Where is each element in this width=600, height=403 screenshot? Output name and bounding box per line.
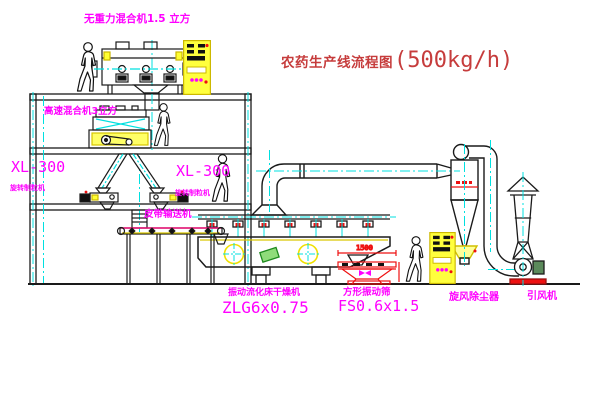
vibration-mounts [207, 219, 373, 237]
label-cyclone: 旋风除尘器 [449, 293, 499, 303]
label-screen-model: FS0.6x1.5 [338, 299, 419, 314]
worker-figure-top [78, 43, 96, 91]
dryer-name-plate [260, 247, 279, 262]
label-belt-conveyor: 皮带输送机 [144, 210, 192, 220]
diagram-title: 农药生产线流程图(500kg/h) [281, 48, 513, 73]
title-text: 农药生产线流程图 [281, 51, 393, 71]
label-granulator-left-model: XL-300 [11, 160, 65, 175]
label-dryer-name: 振动流化床干燥机 [228, 289, 300, 298]
dryer-sight-glass-left [223, 243, 245, 265]
label-induced-draft-fan: 引风机 [527, 292, 557, 302]
label-granulator-center-name: 旋转制粒机 [175, 190, 210, 197]
label-high-speed-mixer: 高速混合机3立方 [44, 107, 117, 117]
control-cabinet-upper [184, 41, 211, 95]
control-cabinet-lower [430, 233, 455, 284]
granulator-left [80, 188, 118, 209]
label-granulator-center-model: XL-300 [176, 164, 230, 179]
stack-and-fan [508, 172, 546, 286]
dimension-1500: 1500 [356, 244, 373, 252]
exhaust-duct [252, 150, 460, 215]
label-gravity-free-mixer: 无重力混合机1.5 立方 [84, 14, 190, 25]
title-capacity: (500kg/h) [394, 48, 513, 73]
dryer-sight-glass-right [297, 243, 319, 265]
label-dryer-model: ZLG6x0.75 [222, 300, 309, 316]
worker-figure-ground [406, 237, 423, 282]
diagram-canvas: 1500 农药生产线流程图(500kg/h) 无重力混合机1.5 立方 高速混合… [0, 0, 600, 403]
y-splitter-chute [98, 154, 160, 188]
square-vibrating-screen: 1500 [338, 244, 399, 284]
label-granulator-left-name: 旋转制粒机 [10, 185, 45, 192]
